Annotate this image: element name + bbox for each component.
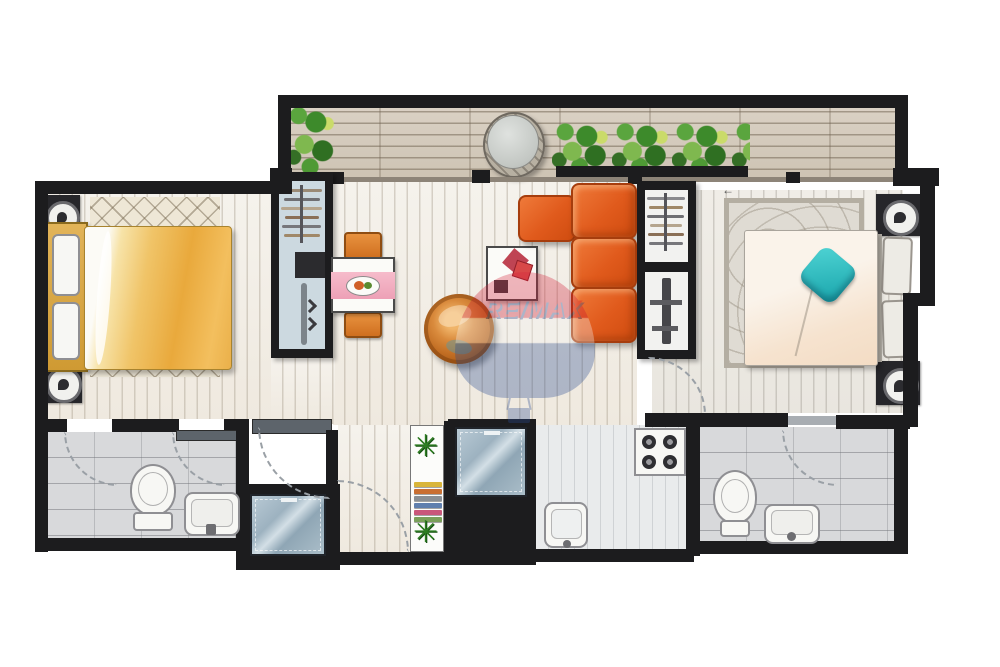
slide-direction-arrow: ←	[722, 183, 734, 197]
balcony-round-table	[483, 112, 545, 178]
bath-right-exterior-wall	[894, 417, 908, 554]
balcony-table-top	[487, 115, 539, 169]
bath-left-bottom-wall	[35, 538, 247, 551]
closet-rail	[664, 193, 667, 251]
bedroom-right-wall-upper	[920, 181, 935, 299]
toilet	[710, 470, 760, 540]
kitchen-right-wall	[686, 426, 700, 556]
sliding-door-handle-block	[472, 170, 490, 183]
closet-divider	[637, 262, 696, 272]
bed-left-pillow	[52, 302, 80, 360]
food-item	[354, 281, 364, 290]
duvet-crease	[795, 288, 814, 356]
balcony-top-wall	[278, 95, 908, 108]
dresser-bar	[650, 300, 682, 305]
sliding-door-stop-3	[786, 172, 800, 183]
sliding-door-track	[333, 177, 903, 182]
food-item	[364, 282, 372, 289]
decor-diamond	[512, 260, 533, 281]
plant-icon: ✳	[413, 518, 438, 548]
book	[414, 503, 442, 508]
sofa-cushion	[571, 183, 637, 239]
toilet-base	[720, 520, 750, 537]
sofa-cushion	[571, 237, 637, 289]
bathroom-sink	[184, 492, 240, 536]
plant-icon: ✳	[413, 432, 438, 462]
bathroom-sink	[764, 504, 820, 544]
toilet-tank	[133, 512, 173, 531]
book	[414, 496, 442, 501]
floor-plan: ←	[0, 0, 1000, 667]
balcony-right-wall	[895, 95, 908, 175]
ceiling-speaker-icon	[876, 194, 920, 236]
dining-chair	[344, 312, 382, 338]
dresser-bar	[652, 326, 678, 331]
coffee-table	[486, 246, 538, 301]
faucet-icon	[206, 524, 216, 535]
toilet	[128, 464, 180, 534]
bed-left-sheet-fold	[92, 231, 114, 366]
faucet-icon	[787, 532, 796, 541]
sink-basin	[551, 509, 582, 539]
closet-shelf-block	[295, 252, 325, 278]
top-wall-left-unit	[35, 181, 283, 194]
faucet-icon	[563, 540, 571, 548]
slide-arrow-glyph: ←	[722, 183, 734, 197]
bed-left-duvet	[84, 226, 232, 370]
rug-throw	[445, 338, 473, 356]
kitchen-bottom-wall	[448, 549, 694, 562]
dining-table	[331, 257, 395, 313]
sink-basin	[191, 499, 233, 527]
burner-icon	[642, 455, 656, 469]
hall-shelf-unit: ✳ ✳	[410, 425, 444, 552]
entry-bottom-wall	[326, 552, 462, 565]
closet-rod	[301, 283, 307, 345]
toilet-bowl-inner	[138, 472, 168, 506]
bath-right-door-threshold	[788, 416, 836, 425]
bed-left-pillow	[52, 234, 80, 296]
dresser-bar	[662, 278, 671, 344]
bedroom-left-door-floor	[271, 358, 335, 424]
burner-icon	[663, 435, 677, 449]
bath-left-top-wall-seg	[35, 419, 67, 432]
kitchen-sink	[544, 502, 588, 548]
balcony-plant-left	[288, 98, 336, 178]
sofa-cushion	[571, 287, 637, 343]
wall-junction-block	[270, 168, 292, 194]
book	[414, 482, 442, 487]
left-exterior-wall	[35, 181, 48, 552]
burner-icon	[663, 455, 677, 469]
sofa-l-shaped	[571, 183, 637, 343]
decor-square	[494, 280, 508, 293]
toilet-bowl-inner	[721, 479, 749, 513]
rug-highlight	[436, 301, 475, 331]
gas-stove	[634, 428, 686, 476]
dining-chair	[344, 232, 382, 260]
wardrobe-right-interior	[645, 190, 688, 350]
shower-glass-box	[250, 494, 326, 556]
closet-rail	[300, 185, 303, 243]
bath-left-top-wall-seg	[112, 419, 179, 432]
wardrobe-left-interior	[279, 181, 325, 349]
bed-right-pillow	[881, 236, 913, 295]
sofa-chaise	[518, 195, 576, 242]
burner-icon	[642, 435, 656, 449]
bedroom-right-wall-lower	[903, 293, 918, 427]
book	[414, 510, 442, 515]
round-rug	[424, 294, 494, 364]
bedroom2-bath-wall-left	[645, 413, 788, 427]
book	[414, 489, 442, 494]
washer-glass-front	[455, 427, 527, 497]
bed-right-duvet	[744, 230, 878, 366]
